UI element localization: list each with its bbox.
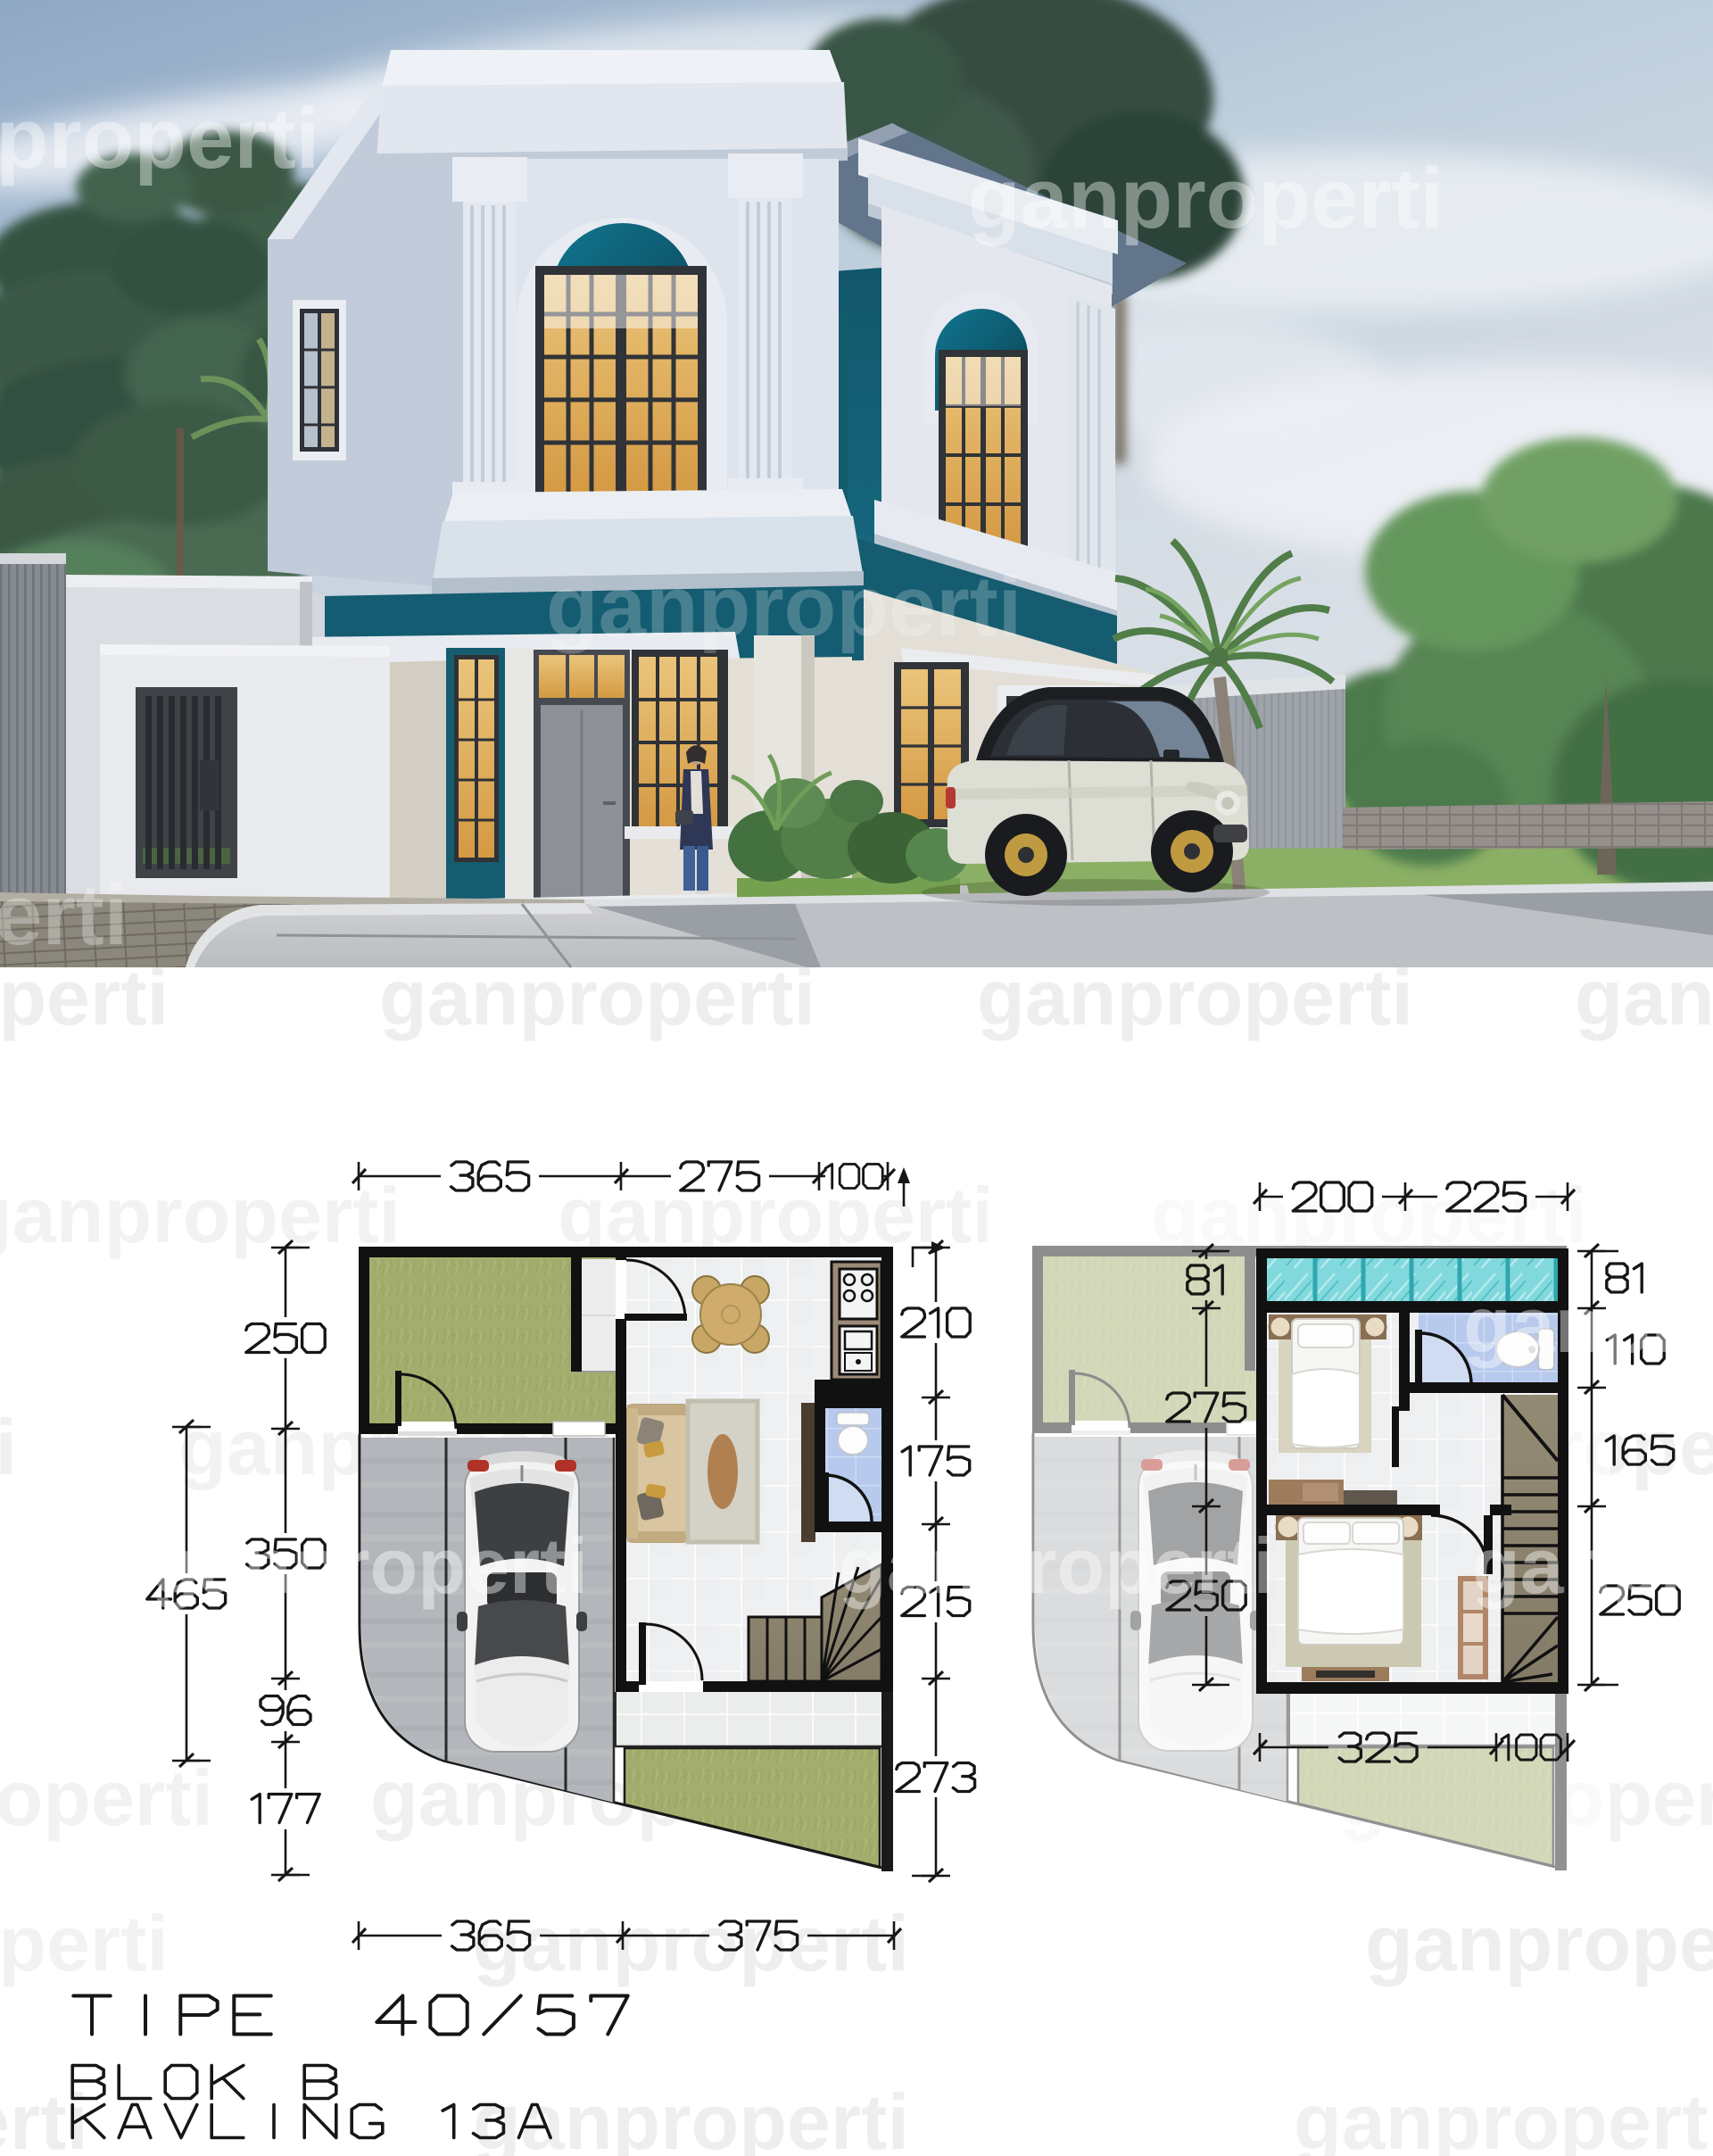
svg-text:ganproperti: ganproperti bbox=[1472, 1522, 1713, 1610]
svg-text:ganproperti: ganproperti bbox=[1575, 953, 1713, 1041]
svg-text:ganproperti: ganproperti bbox=[0, 91, 319, 187]
svg-text:ganproperti: ganproperti bbox=[0, 953, 169, 1041]
svg-text:ganproperti: ganproperti bbox=[473, 2077, 909, 2156]
svg-text:ganproperti: ganproperti bbox=[0, 867, 128, 963]
svg-text:ganproperti: ganproperti bbox=[558, 1171, 994, 1259]
svg-text:ganproperti: ganproperti bbox=[839, 1522, 1275, 1610]
svg-text:ganproperti: ganproperti bbox=[0, 1171, 401, 1259]
svg-text:ganproperti: ganproperti bbox=[1463, 1281, 1713, 1369]
svg-text:ganproperti: ganproperti bbox=[152, 1522, 588, 1610]
svg-text:ganproperti: ganproperti bbox=[379, 953, 815, 1041]
svg-text:ganproperti: ganproperti bbox=[977, 953, 1413, 1041]
svg-text:ganproperti: ganproperti bbox=[0, 2077, 88, 2156]
svg-text:ganproperti: ganproperti bbox=[1294, 2077, 1713, 2156]
svg-text:ganproperti: ganproperti bbox=[968, 151, 1444, 246]
svg-text:ganproperti: ganproperti bbox=[473, 1899, 909, 1987]
svg-text:ganproperti: ganproperti bbox=[546, 559, 1022, 654]
svg-text:ganproperti: ganproperti bbox=[0, 1403, 17, 1491]
svg-text:ganproperti: ganproperti bbox=[1365, 1899, 1713, 1987]
svg-text:ganproperti: ganproperti bbox=[0, 1899, 169, 1987]
